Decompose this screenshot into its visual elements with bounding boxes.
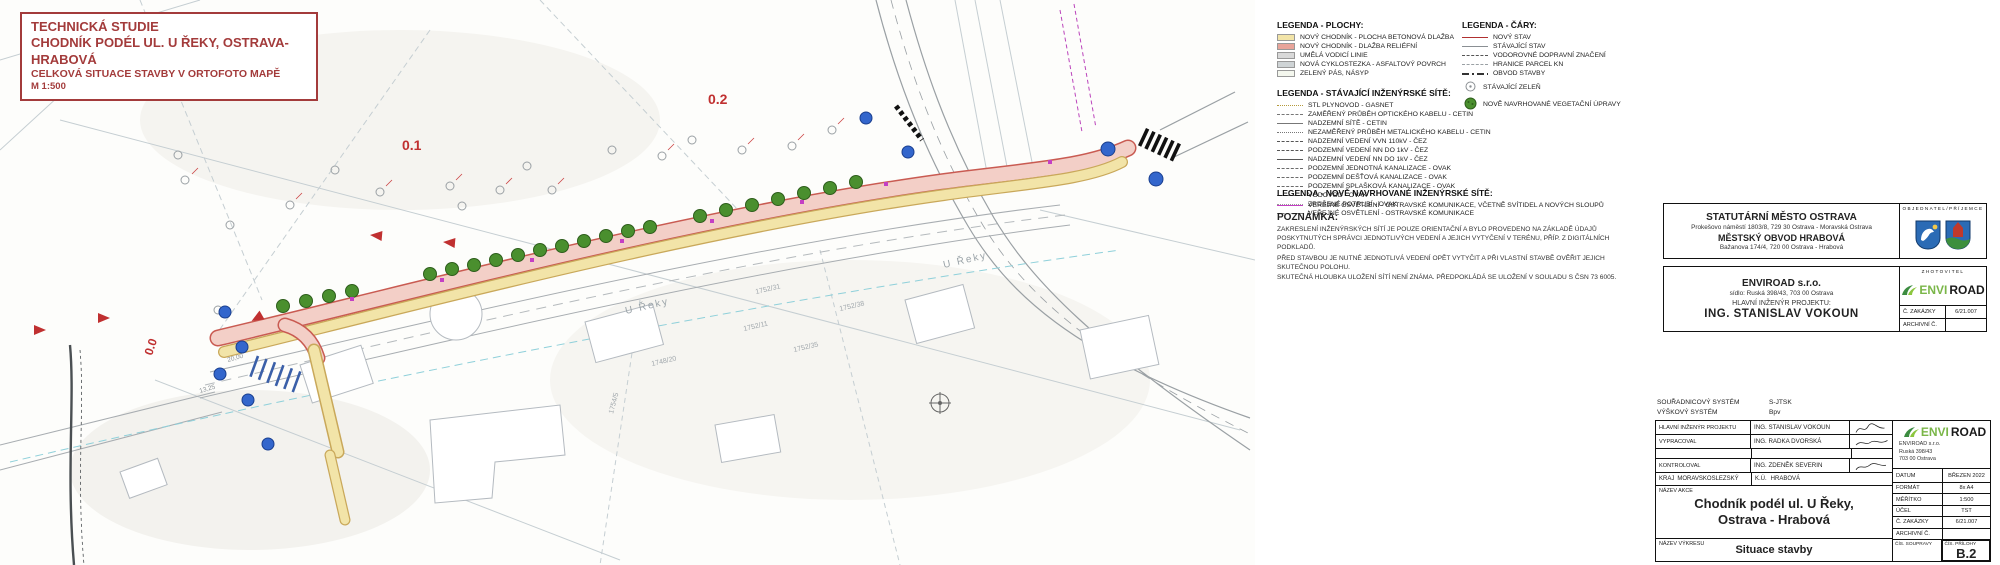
legend-line-item: HRANICE PARCEL KN [1462, 61, 1621, 68]
line-sample [1277, 168, 1303, 169]
coordinate-systems: SOUŘADNICOVÝ SYSTÉM S-JTSK VÝŠKOVÝ SYSTÉ… [1657, 398, 1792, 418]
project-name-line1: Chodník podél ul. U Řeky, [1694, 496, 1853, 512]
area-swatch [1277, 52, 1295, 59]
region-row: KRAJ MORAVSKOSLEZSKÝ K.Ú. HRABOVÁ [1656, 473, 1892, 486]
owner-district-address: Bažanova 174/4, 720 00 Ostrava - Hrabová [1720, 244, 1843, 251]
signature [1850, 459, 1892, 472]
legend-label: NOVÝ CHODNÍK - DLAŽBA RELIÉFNÍ [1300, 43, 1417, 50]
order-value: 6/21.007 [1943, 519, 1990, 525]
sheet-number-value: B.2 [1956, 546, 1976, 561]
legend-utility-item: STL PLYNOVOD - GASNET [1277, 102, 1491, 109]
project-name-line2: Ostrava - Hrabová [1718, 512, 1830, 528]
drawing-name-value: Situace stavby [1735, 544, 1812, 556]
legend-label: ZELENÝ PÁS, NÁSYP [1300, 70, 1369, 77]
legend-label: ZAMĚŘENÝ PRŮBĚH OPTICKÉHO KABELU - CETIN [1308, 111, 1473, 118]
legend-areas: LEGENDA - PLOCHY: NOVÝ CHODNÍK - PLOCHA … [1277, 20, 1454, 79]
drawing-title-box: TECHNICKÁ STUDIE CHODNÍK PODÉL UL. U ŘEK… [20, 12, 318, 101]
contractor-company: ENVIROAD s.r.o. [1742, 278, 1821, 289]
area-swatch [1277, 34, 1295, 41]
format-label: FORMÁT [1893, 483, 1943, 493]
owner-district: MĚSTSKÝ OBVOD HRABOVÁ [1718, 233, 1845, 243]
line-sample [1462, 73, 1488, 75]
legend-area-item: NOVÁ CYKLOSTEZKA - ASFALTOVÝ POVRCH [1277, 61, 1454, 68]
owner-city-address: Prokešovo náměstí 1803/8, 729 30 Ostrava… [1691, 224, 1872, 231]
legend-utility-item: ZAMĚŘENÝ PRŮBĚH OPTICKÉHO KABELU - CETIN [1277, 111, 1491, 118]
archive-label: ARCHIVNÍ Č. [1893, 529, 1943, 539]
table-row: KONTROLOVAL ING. ZDENĚK SEVERIN [1656, 459, 1892, 473]
scale-label: MĚŘÍTKO [1893, 494, 1943, 504]
legend-label: STÁVAJÍCÍ STAV [1493, 43, 1546, 50]
hrabova-coat-of-arms [1945, 220, 1971, 250]
owner-corner-label: OBJEDNATEL/PŘÍJEMCE [1900, 204, 1986, 212]
contractor-block: ENVIROAD s.r.o. sídlo: Ruská 398/43, 703… [1663, 266, 1987, 332]
owner-city: STATUTÁRNÍ MĚSTO OSTRAVA [1706, 212, 1857, 223]
project-title: CHODNÍK PODÉL UL. U ŘEKY, OSTRAVA-HRABOV… [31, 35, 307, 68]
drawing-sheet: 0.1 0.2 0.0 U Řeky U Řeky 1752/31 1752/1… [0, 0, 2000, 565]
line-sample [1462, 37, 1488, 38]
logo-text-road: ROAD [1951, 425, 1986, 439]
legend-utility-item: NADZEMNÍ SÍTĚ - CETIN [1277, 120, 1491, 127]
enviroad-logo-mark [1903, 426, 1919, 438]
ostrava-coat-of-arms [1915, 220, 1941, 250]
date-label: DATUM [1893, 469, 1943, 482]
format-value: 8x A4 [1943, 485, 1990, 491]
legend-label: UMĚLÁ VODICÍ LINIE [1300, 52, 1368, 59]
line-sample [1277, 123, 1303, 124]
legend-label: VEŘEJNÉ OSVĚTLENÍ - OSTRAVSKÉ KOMUNIKACE… [1308, 202, 1604, 209]
legend-label: VODOROVNÉ DOPRAVNÍ ZNAČENÍ [1493, 52, 1606, 59]
order-number-label: Č. ZAKÁZKY [1900, 306, 1946, 318]
table-row-empty [1656, 449, 1892, 459]
person-name: ING. RADKA DVORSKÁ [1751, 435, 1850, 448]
project-name-cell: NÁZEV AKCE Chodník podél ul. U Řeky, Ost… [1656, 486, 1892, 539]
line-sample [1277, 141, 1303, 142]
note-line: SKUTEČNÁ HLOUBKA ULOŽENÍ SÍTÍ NENÍ ZNÁMA… [1277, 274, 1629, 283]
date-row: DATUM BŘEZEN 2022 [1893, 469, 1990, 483]
logo-text-envi: ENVI [1921, 425, 1949, 439]
region-label: KRAJ [1659, 476, 1674, 482]
purpose-label: ÚČEL [1893, 506, 1943, 516]
note-line: ZAKRESLENÍ INŽENÝRSKÝCH SÍTÍ JE POUZE OR… [1277, 226, 1629, 253]
table-row: VYPRACOVAL ING. RADKA DVORSKÁ [1656, 435, 1892, 449]
note-title: POZNÁMKA: [1277, 212, 1629, 223]
legend-label: STÁVAJÍCÍ ZELEŇ [1483, 84, 1541, 91]
line-sample [1277, 150, 1303, 151]
legend-area-item: UMĚLÁ VODICÍ LINIE [1277, 52, 1454, 59]
legend-label: NADZEMNÍ VEDENÍ VVN 110kV - ČEZ [1308, 138, 1427, 145]
archive-number-row: ARCHIVNÍ Č. [1900, 318, 1986, 331]
contractor-corner-label: ZHOTOVITEL [1900, 267, 1986, 275]
line-sample [1462, 55, 1488, 56]
scale-label: M 1:500 [31, 81, 307, 93]
legend-area-item: NOVÝ CHODNÍK - DLAŽBA RELIÉFNÍ [1277, 43, 1454, 50]
legend-area-item: ZELENÝ PÁS, NÁSYP [1277, 70, 1454, 77]
role-label: HLAVNÍ INŽENÝR PROJEKTU [1656, 421, 1751, 434]
person-name: ING. ZDENĚK SEVERIN [1751, 459, 1850, 472]
chief-engineer-label: HLAVNÍ INŽENÝR PROJEKTU: [1732, 300, 1831, 307]
region-value: MORAVSKOSLEZSKÝ [1677, 476, 1738, 482]
set-number-label: ČÍS. SOUPRAVY [1895, 542, 1932, 547]
legend-label: NEZAMĚŘENÝ PRŮBĚH METALICKÉHO KABELU - C… [1308, 129, 1491, 136]
format-row: FORMÁT 8x A4 [1893, 483, 1990, 494]
cadastre-value: HRABOVÁ [1771, 476, 1800, 482]
legend-line-item: STÁVAJÍCÍ STAV [1462, 43, 1621, 50]
set-number-cell: ČÍS. SOUPRAVY [1893, 540, 1942, 561]
legend-label: NOVÁ CYKLOSTEZKA - ASFALTOVÝ POVRCH [1300, 61, 1446, 68]
area-swatch [1277, 70, 1295, 77]
owner-info: STATUTÁRNÍ MĚSTO OSTRAVA Prokešovo náměs… [1664, 204, 1899, 258]
legend-label: NOVĚ NAVRHOVANÉ VEGETAČNÍ ÚPRAVY [1483, 101, 1621, 108]
enviroad-logo: ENVIROAD [1900, 275, 1986, 305]
scale-row: MĚŘÍTKO 1:500 [1893, 494, 1990, 505]
note-block: POZNÁMKA: ZAKRESLENÍ INŽENÝRSKÝCH SÍTÍ J… [1277, 212, 1629, 285]
legend-utility-item: NEZAMĚŘENÝ PRŮBĚH METALICKÉHO KABELU - C… [1277, 129, 1491, 136]
legend-label: PODZEMNÍ VEDENÍ NN DO 1kV - ČEZ [1308, 147, 1428, 154]
person-name: ING. STANISLAV VOKOUN [1751, 421, 1850, 434]
order-number-value: 6/21.007 [1946, 309, 1986, 315]
height-system-value: Bpv [1769, 408, 1780, 418]
legend-line-item: NOVÝ STAV [1462, 34, 1621, 41]
line-sample [1277, 186, 1303, 187]
purpose-row: ÚČEL TST [1893, 506, 1990, 517]
title-block-table: HLAVNÍ INŽENÝR PROJEKTU ING. STANISLAV V… [1655, 420, 1991, 562]
archive-number-label: ARCHIVNÍ Č. [1900, 319, 1946, 331]
legend-areas-title: LEGENDA - PLOCHY: [1277, 20, 1454, 30]
line-sample [1277, 159, 1303, 160]
scale-value: 1:500 [1943, 497, 1990, 503]
line-sample [1277, 114, 1303, 115]
table-row: HLAVNÍ INŽENÝR PROJEKTU ING. STANISLAV V… [1656, 421, 1892, 435]
legend-new-utilities-title: LEGENDA - NOVĚ NAVRHOVANÉ INŽENÝRSKÉ SÍT… [1277, 188, 1604, 198]
legend-label: NADZEMNÍ SÍTĚ - CETIN [1308, 120, 1387, 127]
order-number-row: Č. ZAKÁZKY 6/21.007 [1900, 305, 1986, 318]
legend-new-utilities: LEGENDA - NOVĚ NAVRHOVANÉ INŽENÝRSKÉ SÍT… [1277, 188, 1604, 211]
legend-lines-title: LEGENDA - ČÁRY: [1462, 20, 1621, 30]
line-sample [1277, 177, 1303, 178]
cadastre-label: K.Ú. [1755, 476, 1767, 482]
project-name-label: NÁZEV AKCE [1659, 488, 1693, 494]
legend-label: NOVÝ CHODNÍK - PLOCHA BETONOVÁ DLAŽBA [1300, 34, 1454, 41]
owner-block: STATUTÁRNÍ MĚSTO OSTRAVA Prokešovo náměs… [1663, 203, 1987, 259]
purpose-value: TST [1943, 508, 1990, 514]
station-label-0.2: 0.2 [708, 91, 728, 107]
legend-utility-item: NADZEMNÍ VEDENÍ NN DO 1kV - ČEZ [1277, 156, 1491, 163]
legend-label: PODZEMNÍ DEŠŤOVÁ KANALIZACE - OVAK [1308, 174, 1447, 181]
legend-label: PODZEMNÍ JEDNOTNÁ KANALIZACE - OVAK [1308, 165, 1451, 172]
role-label: VYPRACOVAL [1656, 435, 1751, 448]
line-sample [1277, 205, 1303, 206]
logo-text-road: ROAD [1949, 283, 1984, 297]
sheet-number-cell: ČÍS. PŘÍLOHY B.2 [1942, 540, 1991, 561]
contractor-address: sídlo: Ruská 398/43, 703 00 Ostrava [1730, 290, 1834, 297]
signature [1850, 421, 1892, 434]
legend-label: OBVOD STAVBY [1493, 70, 1545, 77]
legend-line-item: VODOROVNÉ DOPRAVNÍ ZNAČENÍ [1462, 52, 1621, 59]
contractor-info: ENVIROAD s.r.o. sídlo: Ruská 398/43, 703… [1664, 267, 1899, 331]
line-sample [1462, 46, 1488, 47]
area-swatch [1277, 61, 1295, 68]
legend-utility-item: NADZEMNÍ VEDENÍ VVN 110kV - ČEZ [1277, 138, 1491, 145]
contractor-corner: ZHOTOVITEL ENVIROAD Č. ZAKÁZKY 6/21.007 … [1899, 267, 1986, 331]
signature [1850, 435, 1892, 448]
legend-utility-item: PODZEMNÍ DEŠŤOVÁ KANALIZACE - OVAK [1277, 174, 1491, 181]
coord-system-value: S-JTSK [1769, 398, 1792, 408]
height-system-label: VÝŠKOVÝ SYSTÉM [1657, 408, 1769, 418]
order-row: Č. ZAKÁZKY 6/21.007 [1893, 517, 1990, 528]
firm-cell: ENVIROAD ENVIROAD s.r.o. Ruská 398/43 70… [1893, 421, 1990, 469]
line-sample [1462, 64, 1488, 65]
archive-row: ARCHIVNÍ Č. [1893, 529, 1990, 540]
firm-address: ENVIROAD s.r.o. Ruská 398/43 703 00 Ostr… [1899, 441, 1940, 464]
sheet-number-label: ČÍS. PŘÍLOHY [1945, 542, 1977, 547]
legend-area-item: NOVÝ CHODNÍK - PLOCHA BETONOVÁ DLAŽBA [1277, 34, 1454, 41]
study-type: TECHNICKÁ STUDIE [31, 19, 307, 35]
area-swatch [1277, 43, 1295, 50]
note-line: PŘED STAVBOU JE NUTNÉ JEDNOTLIVÁ VEDENÍ … [1277, 255, 1629, 273]
logo-text-envi: ENVI [1919, 283, 1947, 297]
station-label-0.1: 0.1 [402, 137, 422, 153]
drawing-name-label: NÁZEV VÝKRESU [1659, 541, 1704, 547]
legend-existing-utilities-title: LEGENDA - STÁVAJÍCÍ INŽENÝRSKÉ SÍTĚ: [1277, 88, 1491, 98]
enviroad-logo-bottom: ENVIROAD [1903, 425, 1986, 439]
line-sample [1277, 132, 1303, 133]
line-sample [1277, 105, 1303, 106]
legend-utility-item: PODZEMNÍ VEDENÍ NN DO 1kV - ČEZ [1277, 147, 1491, 154]
coord-system-label: SOUŘADNICOVÝ SYSTÉM [1657, 398, 1769, 408]
order-label: Č. ZAKÁZKY [1893, 517, 1943, 527]
role-label: KONTROLOVAL [1656, 459, 1751, 472]
drawing-subtitle: CELKOVÁ SITUACE STAVBY V ORTOFOTO MAPĚ [31, 68, 307, 81]
legend-label: NOVÝ STAV [1493, 34, 1531, 41]
date-value: BŘEZEN 2022 [1943, 473, 1990, 479]
legend-line-item: OBVOD STAVBY [1462, 70, 1621, 77]
legend-utility-item: PODZEMNÍ JEDNOTNÁ KANALIZACE - OVAK [1277, 165, 1491, 172]
legend-label: HRANICE PARCEL KN [1493, 61, 1563, 68]
legend-label: NADZEMNÍ VEDENÍ NN DO 1kV - ČEZ [1308, 156, 1428, 163]
drawing-name-cell: NÁZEV VÝKRESU Situace stavby [1656, 539, 1892, 561]
chief-engineer-name: ING. STANISLAV VOKOUN [1704, 308, 1858, 320]
enviroad-logo-mark [1901, 284, 1917, 296]
owner-corner: OBJEDNATEL/PŘÍJEMCE [1899, 204, 1986, 258]
legend-label: STL PLYNOVOD - GASNET [1308, 102, 1393, 109]
legend-utility-item: VEŘEJNÉ OSVĚTLENÍ - OSTRAVSKÉ KOMUNIKACE… [1277, 202, 1604, 209]
